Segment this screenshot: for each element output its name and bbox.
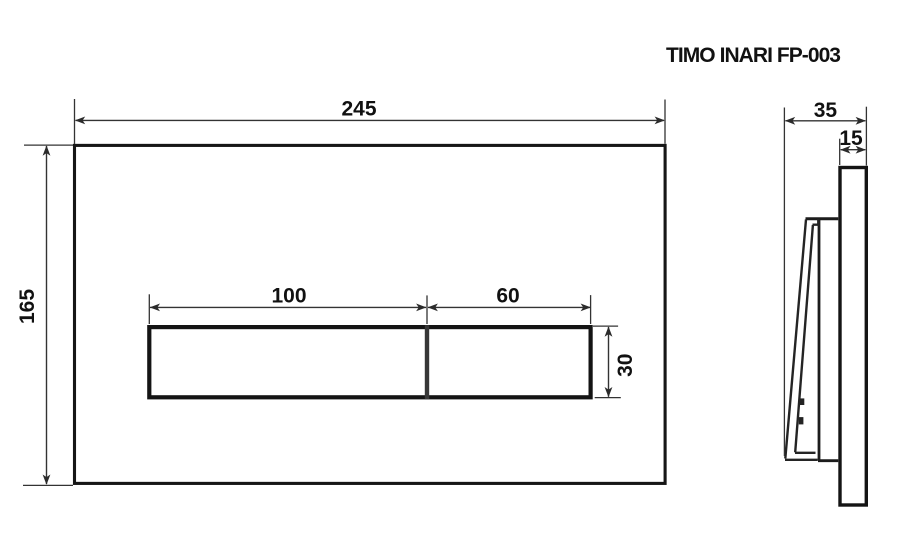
- svg-text:165: 165: [16, 289, 39, 324]
- svg-text:60: 60: [496, 285, 519, 308]
- svg-text:35: 35: [814, 99, 838, 122]
- svg-text:TIMO INARI FP-003: TIMO INARI FP-003: [666, 44, 840, 67]
- svg-text:100: 100: [271, 285, 306, 308]
- svg-text:245: 245: [341, 98, 376, 121]
- svg-text:30: 30: [614, 354, 637, 377]
- svg-text:15: 15: [839, 127, 863, 150]
